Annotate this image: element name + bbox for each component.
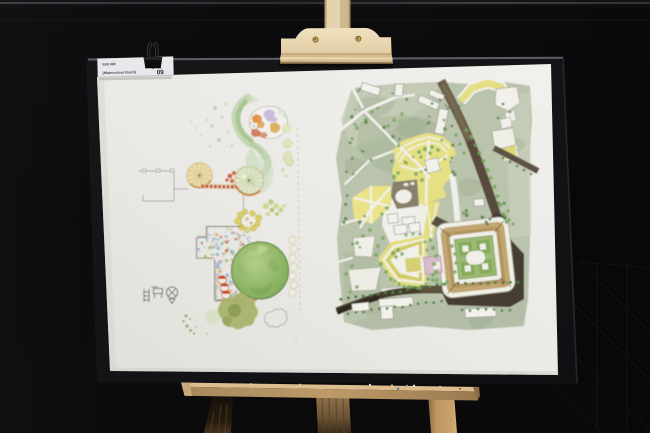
svg-text:09: 09 [157, 69, 165, 76]
svg-text:EKE 990: EKE 990 [102, 62, 115, 66]
